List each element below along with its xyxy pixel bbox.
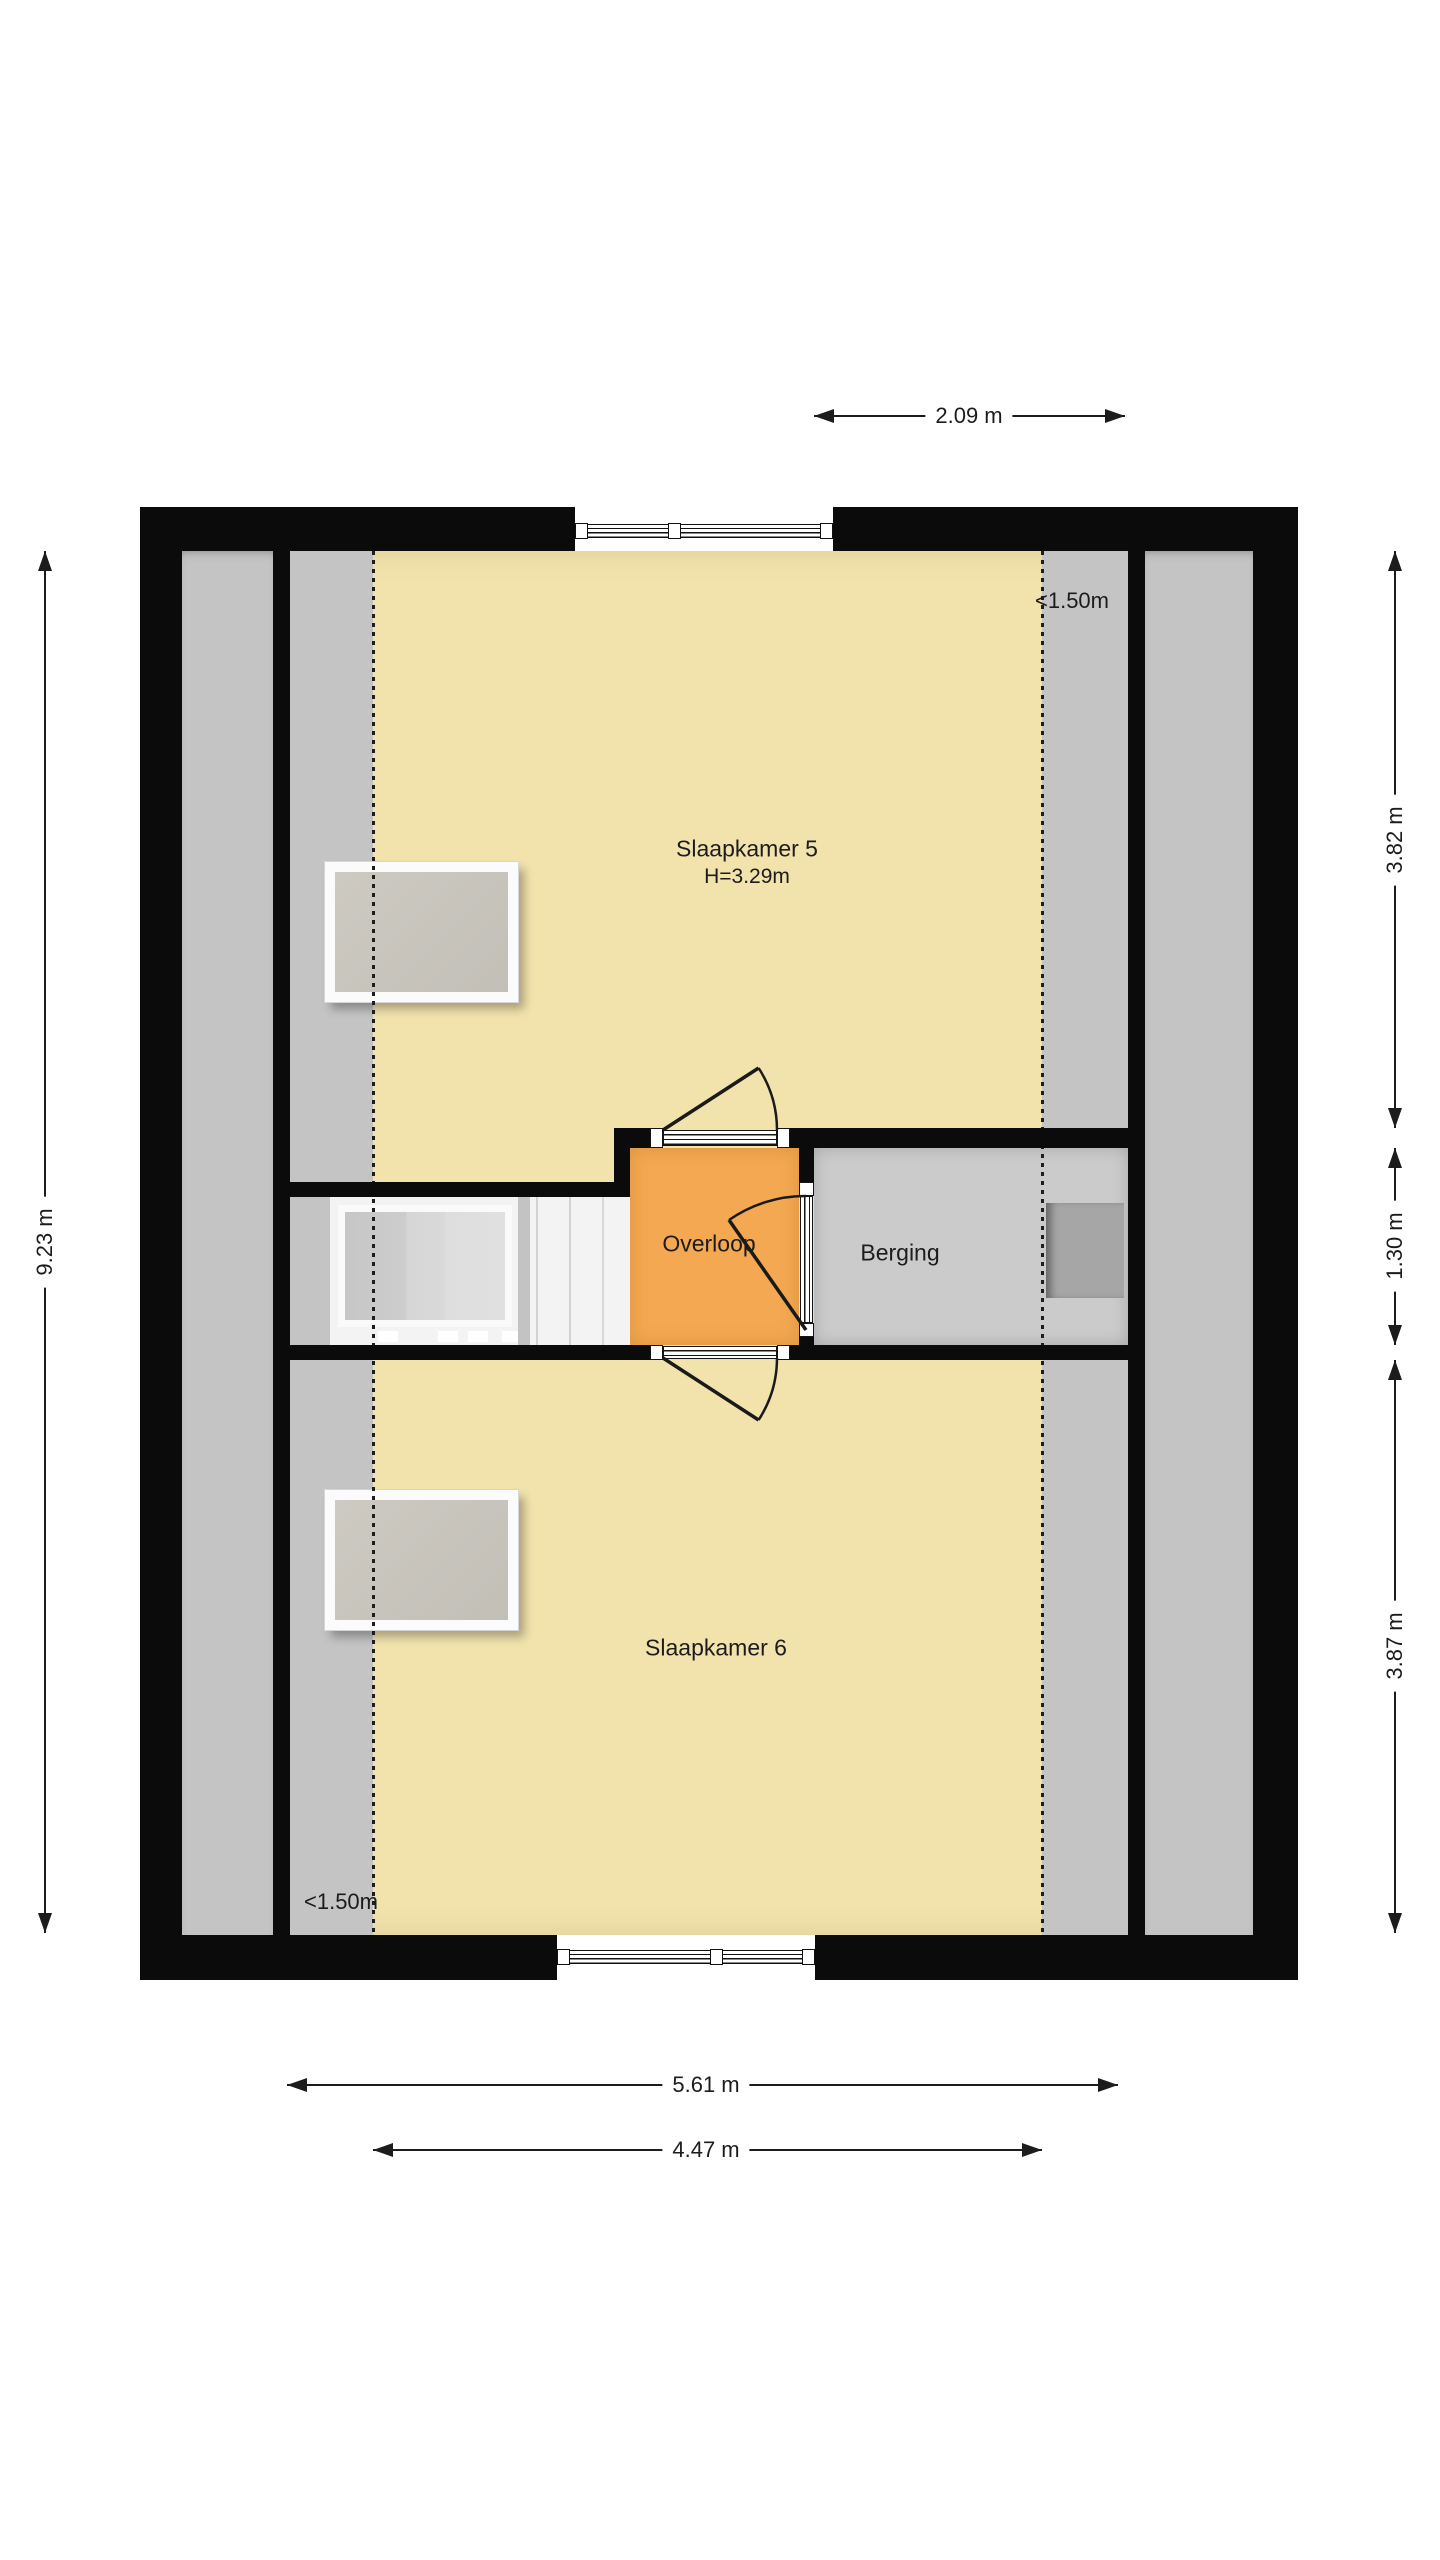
- door-swings: [0, 0, 1440, 2560]
- arrow-up-icon: [1388, 551, 1402, 571]
- arrow-up-icon: [1388, 1148, 1402, 1168]
- room-label-slaapkamer5: Slaapkamer 5: [676, 836, 818, 863]
- arrow-right-icon: [1022, 2143, 1042, 2157]
- headroom-label-top: <1.50m: [1035, 588, 1109, 614]
- dim-label-right-top: 3.82 m: [1380, 794, 1410, 885]
- dim-label-right-middle: 1.30 m: [1380, 1200, 1410, 1291]
- arrow-down-icon: [1388, 1108, 1402, 1128]
- arrow-down-icon: [1388, 1913, 1402, 1933]
- arrow-left-icon: [814, 409, 834, 423]
- room-height-label-slaapkamer5: H=3.29m: [704, 865, 790, 889]
- arrow-down-icon: [38, 1913, 52, 1933]
- dim-label-top: 2.09 m: [925, 401, 1012, 431]
- dim-label-left: 9.23 m: [30, 1196, 60, 1287]
- floorplan-page: Slaapkamer 5 H=3.29m Overloop Berging Sl…: [0, 0, 1440, 2560]
- arrow-up-icon: [38, 551, 52, 571]
- headroom-label-bottom: <1.50m: [304, 1889, 378, 1915]
- dim-label-bottom-inner: 4.47 m: [662, 2135, 749, 2165]
- dim-label-bottom-outer: 5.61 m: [662, 2070, 749, 2100]
- door-swing-top: [759, 1068, 777, 1130]
- room-label-overloop: Overloop: [662, 1231, 755, 1258]
- arrow-right-icon: [1105, 409, 1125, 423]
- dim-label-right-bottom: 3.87 m: [1380, 1600, 1410, 1691]
- arrow-down-icon: [1388, 1325, 1402, 1345]
- door-swing-top-leaf: [663, 1068, 759, 1130]
- room-label-slaapkamer6: Slaapkamer 6: [645, 1635, 787, 1662]
- arrow-left-icon: [373, 2143, 393, 2157]
- door-swing-berging: [729, 1196, 806, 1220]
- door-swing-bottom: [759, 1358, 777, 1420]
- arrow-up-icon: [1388, 1360, 1402, 1380]
- arrow-right-icon: [1098, 2078, 1118, 2092]
- room-label-berging: Berging: [860, 1240, 939, 1267]
- arrow-left-icon: [287, 2078, 307, 2092]
- door-swing-bottom-leaf: [663, 1358, 759, 1420]
